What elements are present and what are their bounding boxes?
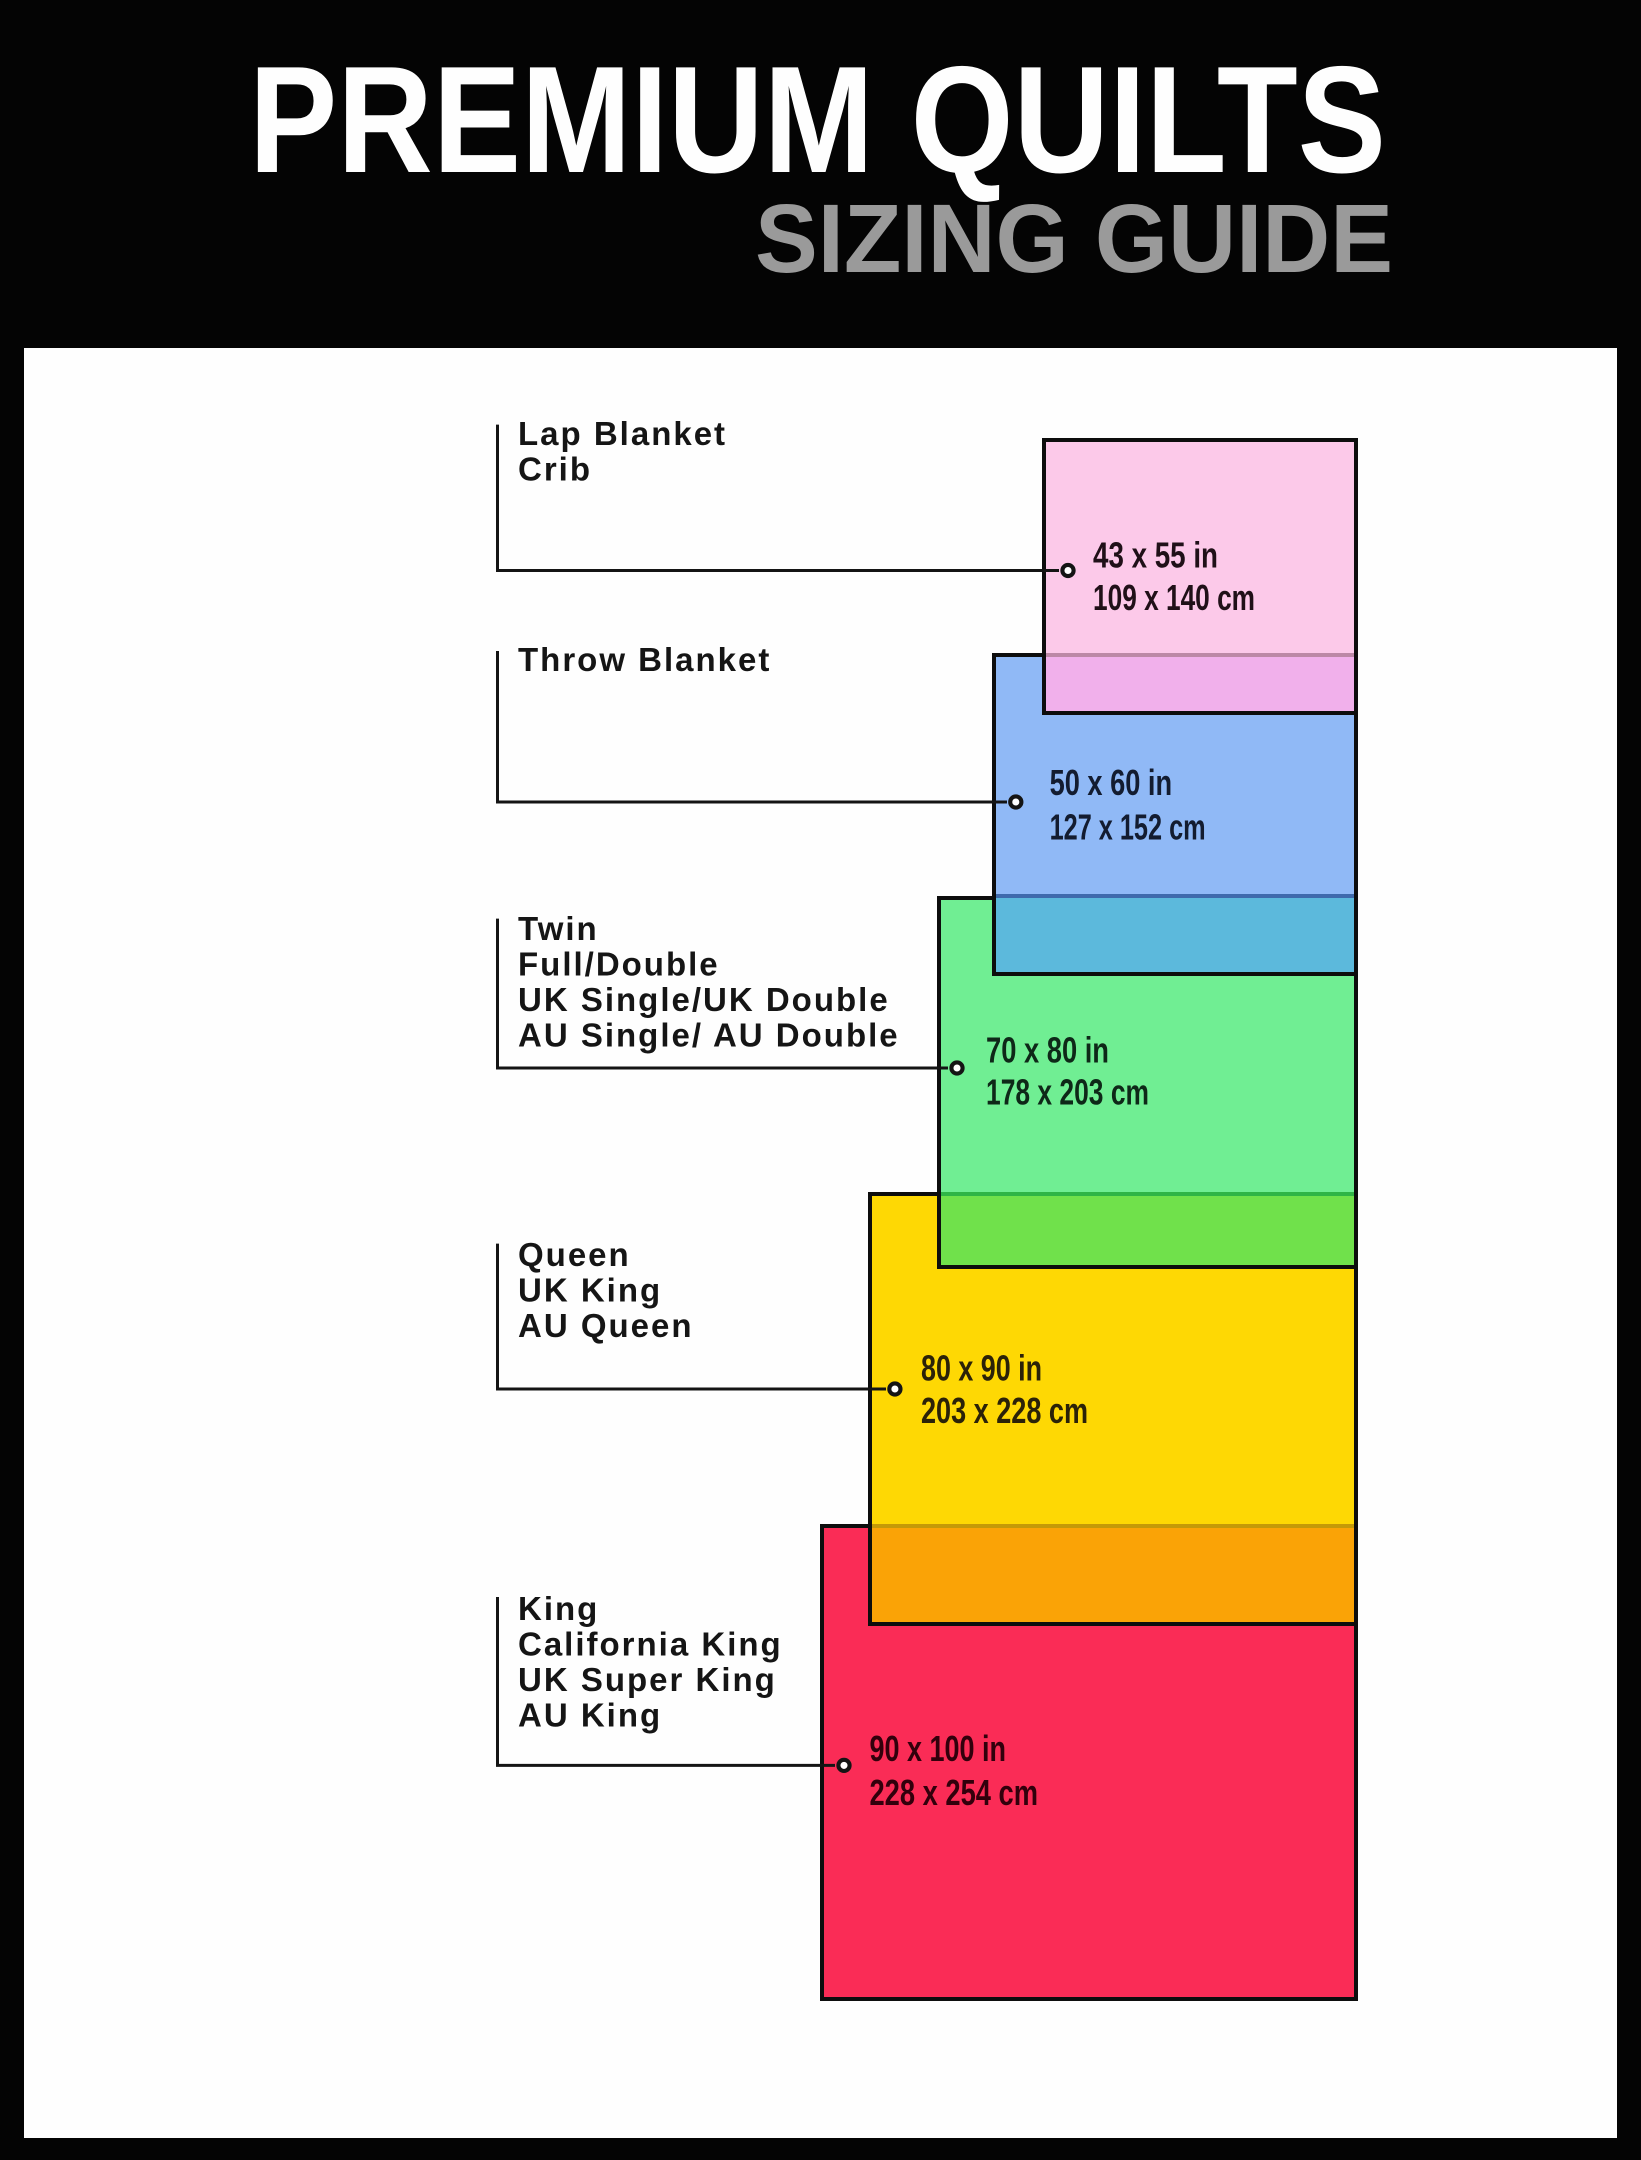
svg-text:AU King: AU King <box>518 1697 662 1734</box>
svg-text:AU Queen: AU Queen <box>518 1307 694 1344</box>
svg-text:109 x 140 cm: 109 x 140 cm <box>1093 577 1255 618</box>
svg-text:Twin: Twin <box>518 910 599 947</box>
svg-text:UK King: UK King <box>518 1272 662 1309</box>
svg-text:90 x 100 in: 90 x 100 in <box>870 1728 1007 1769</box>
svg-text:127 x 152 cm: 127 x 152 cm <box>1050 807 1206 848</box>
svg-text:Full/Double: Full/Double <box>518 946 720 983</box>
svg-text:Lap Blanket: Lap Blanket <box>518 415 727 452</box>
svg-text:Queen: Queen <box>518 1236 631 1273</box>
svg-text:178 x 203 cm: 178 x 203 cm <box>986 1072 1149 1113</box>
svg-text:50 x 60 in: 50 x 60 in <box>1050 762 1173 803</box>
svg-text:King: King <box>518 1590 599 1627</box>
svg-text:70 x 80 in: 70 x 80 in <box>986 1029 1109 1070</box>
svg-text:43 x 55 in: 43 x 55 in <box>1093 535 1218 576</box>
svg-text:203 x 228 cm: 203 x 228 cm <box>921 1390 1088 1431</box>
svg-text:UK Super King: UK Super King <box>518 1661 777 1698</box>
svg-text:SIZING GUIDE: SIZING GUIDE <box>755 184 1393 293</box>
svg-text:California King: California King <box>518 1626 783 1663</box>
svg-text:PREMIUM QUILTS: PREMIUM QUILTS <box>249 35 1386 205</box>
svg-text:228 x 254 cm: 228 x 254 cm <box>870 1772 1039 1813</box>
svg-text:AU Single/ AU Double: AU Single/ AU Double <box>518 1017 900 1054</box>
svg-text:Throw Blanket: Throw Blanket <box>518 641 771 678</box>
svg-text:Crib: Crib <box>518 451 592 488</box>
svg-text:80 x 90 in: 80 x 90 in <box>921 1347 1042 1388</box>
svg-text:UK Single/UK Double: UK Single/UK Double <box>518 981 890 1018</box>
